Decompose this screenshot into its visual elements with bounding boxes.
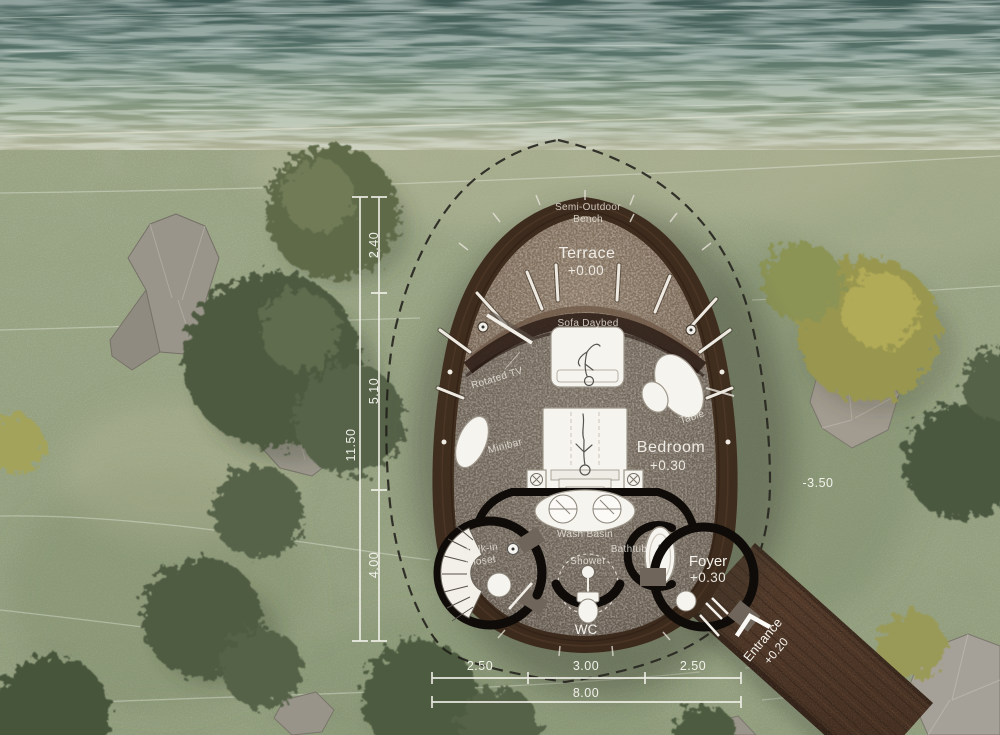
strut xyxy=(556,265,558,300)
water xyxy=(0,0,1000,150)
rim-dot xyxy=(442,440,447,445)
dim-left-seg1-label: 2.40 xyxy=(367,232,381,258)
dim-bottom-total-label: 8.00 xyxy=(573,686,599,700)
terrace-label: Terrace xyxy=(559,245,616,262)
site-plan-image: Semi-Outdoor Bench Terrace +0.00 Sofa Da… xyxy=(0,0,1000,735)
site-plan-svg: Semi-Outdoor Bench Terrace +0.00 Sofa Da… xyxy=(0,0,1000,735)
tree-yellow xyxy=(762,242,842,322)
dim-bottom-seg2-label: 3.00 xyxy=(573,659,599,673)
shower-label: Shower xyxy=(570,556,606,567)
bedroom-level: +0.30 xyxy=(650,458,686,473)
wc-label: WC xyxy=(575,622,598,637)
dim-bottom-seg3-label: 2.50 xyxy=(680,659,706,673)
closet-door-gap xyxy=(520,534,541,547)
dim-left-total-label: 11.50 xyxy=(344,429,358,462)
foyer-stool xyxy=(676,591,696,611)
foyer-level: +0.30 xyxy=(690,570,726,585)
nightstand-speaker xyxy=(527,470,546,489)
dim-left-seg3-label: 4.00 xyxy=(367,552,381,578)
tree xyxy=(222,628,302,708)
strut xyxy=(617,265,619,300)
tree xyxy=(212,466,304,558)
rim-dot xyxy=(726,440,731,445)
dim-left-seg2-label: 5.10 xyxy=(367,378,381,404)
water-ripple-texture xyxy=(0,0,1000,150)
rim-dot xyxy=(720,370,725,375)
closet-stool xyxy=(487,573,511,597)
shower-head xyxy=(582,566,595,579)
sofa-daybed xyxy=(551,327,624,387)
bedroom-label: Bedroom xyxy=(637,439,705,456)
dim-bottom-seg1-label: 2.50 xyxy=(467,659,493,673)
wc-toilet xyxy=(577,592,599,623)
terrace-level: +0.00 xyxy=(568,263,604,278)
bed xyxy=(527,408,643,495)
foyer-label: Foyer xyxy=(689,553,727,570)
bathtub-label: Bathtub xyxy=(611,544,648,555)
rim-dot xyxy=(448,370,453,375)
bench-label-line2: Bench xyxy=(573,214,603,225)
bench-label-line1: Semi-Outdoor xyxy=(555,202,621,213)
nightstand-speaker xyxy=(624,470,643,489)
site-level-label: -3.50 xyxy=(803,476,834,490)
wash-basin xyxy=(535,490,635,532)
wash-basin-label: Wash Basin xyxy=(557,529,613,540)
sofa-daybed-label: Sofa Daybed xyxy=(557,318,618,329)
